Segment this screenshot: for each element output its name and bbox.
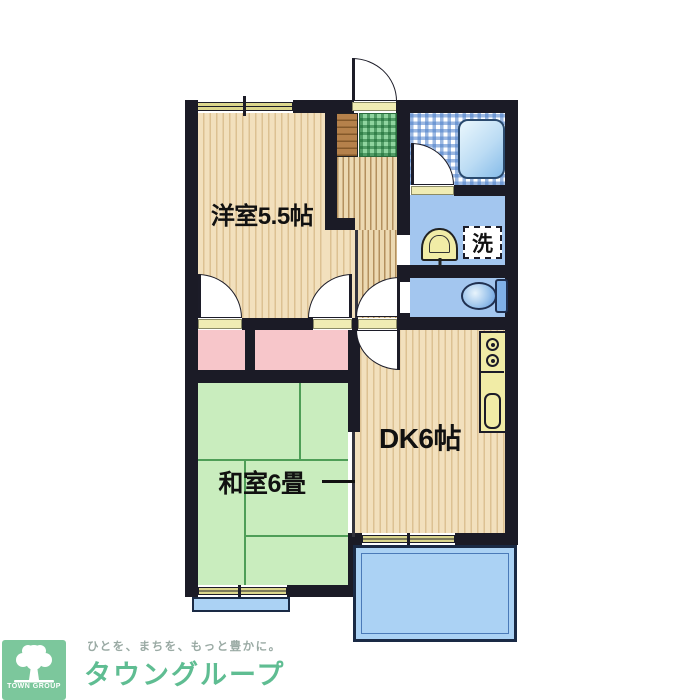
wall	[198, 370, 348, 383]
label-leader-line	[322, 480, 355, 483]
bathtub	[458, 119, 505, 179]
logo-brand-name: タウングループ	[84, 653, 285, 692]
wall	[245, 330, 255, 370]
entrance-threshold	[352, 102, 397, 111]
logo-tagline: ひとを、まちを、もっと豊かに。	[87, 638, 282, 654]
balcony-main	[353, 545, 517, 642]
wall	[410, 265, 505, 278]
room-label-western: 洋室5.5帖	[197, 196, 327, 231]
tree-icon	[2, 640, 66, 686]
wall	[397, 113, 410, 235]
window-japanese-room	[198, 587, 287, 595]
wall	[455, 533, 518, 545]
tatami-line	[244, 535, 348, 537]
balcony-small	[192, 597, 290, 612]
wall	[325, 218, 355, 230]
closet-right	[255, 330, 348, 370]
wall	[293, 100, 354, 113]
toilet	[461, 282, 497, 310]
closet-left-threshold	[198, 319, 242, 329]
stove-burner	[486, 354, 499, 367]
wall	[454, 185, 505, 196]
tatami-line	[198, 459, 348, 461]
window-mullion	[238, 585, 241, 597]
room-label-dk: DK6帖	[355, 417, 485, 457]
washbasin	[421, 228, 458, 261]
wall	[185, 585, 198, 597]
washing-machine-label: 洗	[472, 228, 493, 258]
entrance-mat	[359, 113, 397, 157]
bathroom-threshold	[411, 186, 454, 195]
counter-divider	[481, 371, 504, 373]
town-group-logo: TOWN GROUP	[2, 640, 66, 700]
wall	[397, 317, 505, 330]
entrance-door-arc	[352, 58, 397, 101]
logo-mark-text: TOWN GROUP	[7, 683, 61, 690]
wall-left	[185, 100, 198, 597]
wall	[242, 318, 313, 330]
hallway-dk-threshold	[358, 319, 397, 329]
wall-right	[505, 100, 518, 545]
washing-machine-space: 洗	[463, 226, 502, 259]
wall	[396, 100, 518, 113]
window-mullion	[243, 96, 246, 116]
tatami-line	[299, 383, 301, 460]
window-western-room	[191, 102, 293, 111]
closet-left	[198, 330, 245, 370]
room-label-japanese: 和室6畳	[198, 464, 326, 500]
kitchen-sink	[484, 393, 501, 429]
closet-right-threshold	[313, 319, 352, 329]
window-mullion	[407, 533, 410, 545]
stove-burner	[486, 338, 499, 351]
toilet-tank	[495, 279, 508, 313]
